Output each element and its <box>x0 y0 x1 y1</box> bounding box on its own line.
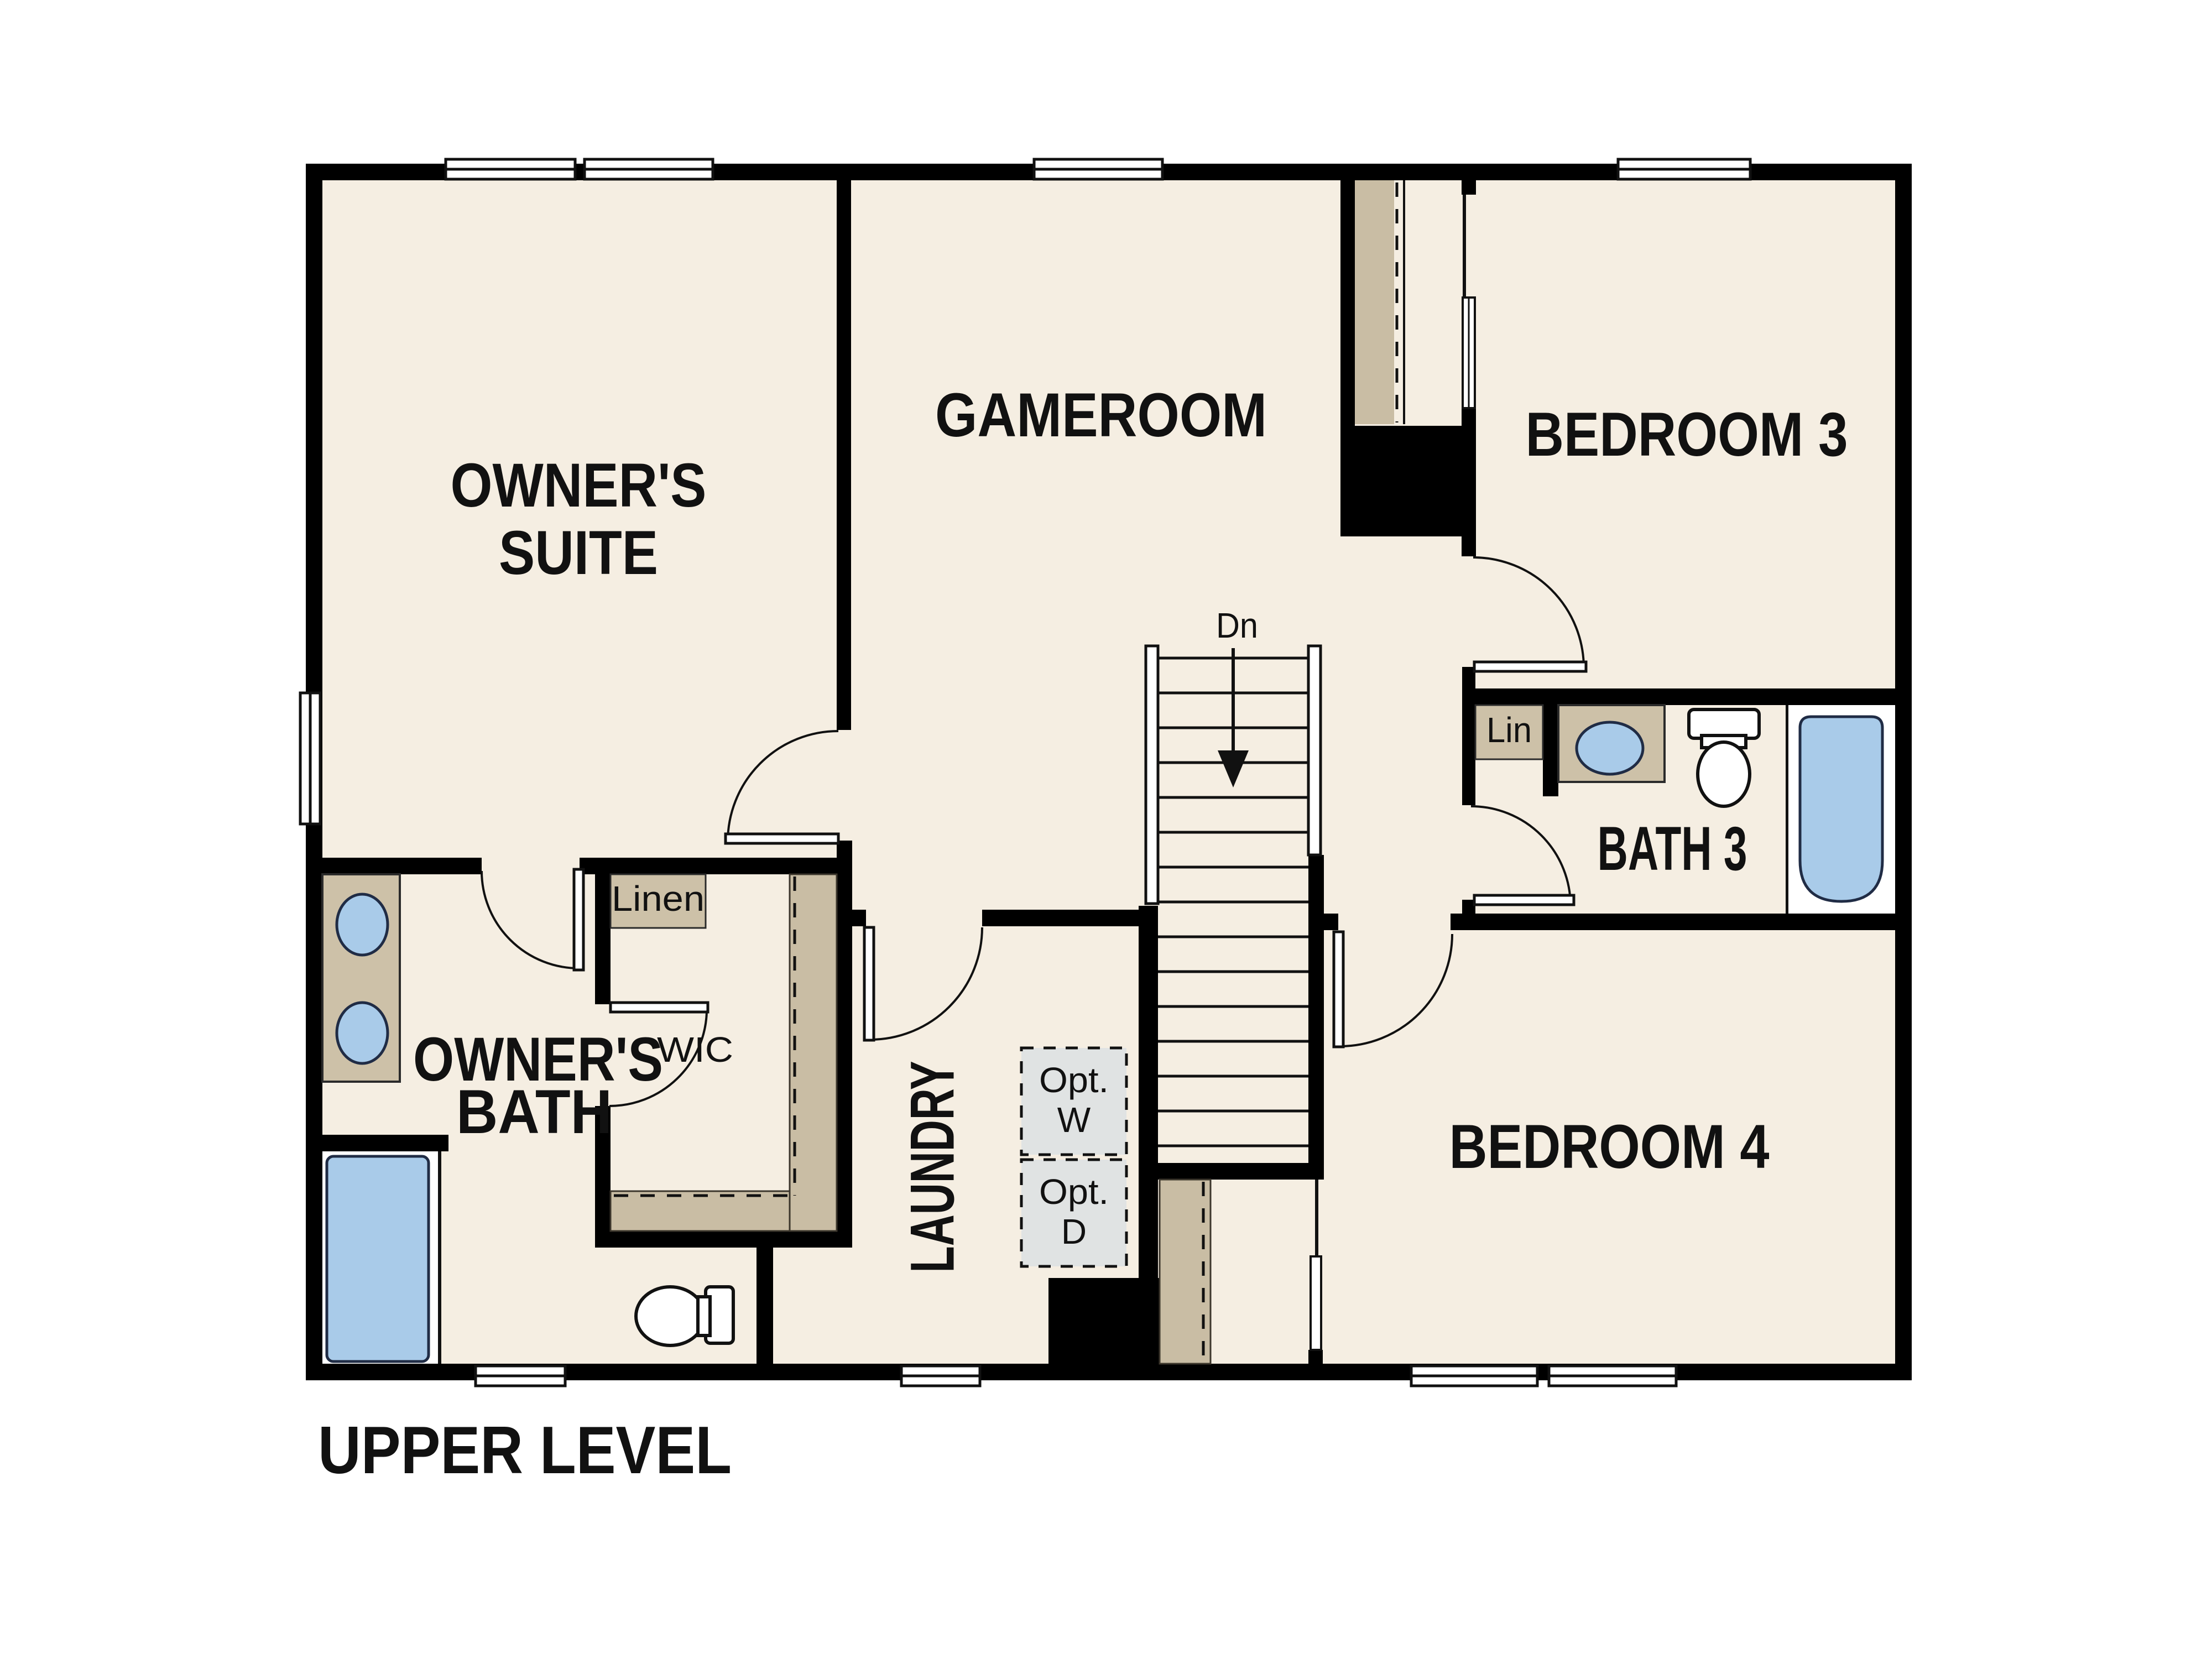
svg-text:BATH 3: BATH 3 <box>1598 814 1747 883</box>
svg-text:GAMEROOM: GAMEROOM <box>935 380 1267 450</box>
svg-text:BATH: BATH <box>456 1077 612 1146</box>
svg-text:UPPER LEVEL: UPPER LEVEL <box>318 1412 732 1488</box>
svg-text:WIC: WIC <box>657 1030 733 1070</box>
svg-text:SUITE: SUITE <box>499 518 658 587</box>
svg-text:BEDROOM 4: BEDROOM 4 <box>1449 1112 1770 1181</box>
svg-text:Linen: Linen <box>612 879 705 919</box>
svg-text:D: D <box>1061 1212 1087 1251</box>
svg-text:BEDROOM 3: BEDROOM 3 <box>1526 400 1848 469</box>
svg-text:Opt.: Opt. <box>1039 1060 1109 1100</box>
svg-text:LAUNDRY: LAUNDRY <box>898 1061 967 1273</box>
svg-text:OWNER'S: OWNER'S <box>451 451 707 520</box>
svg-text:Opt.: Opt. <box>1039 1172 1109 1212</box>
svg-text:Lin: Lin <box>1486 710 1532 750</box>
svg-text:Dn: Dn <box>1216 606 1258 645</box>
svg-text:W: W <box>1057 1100 1091 1140</box>
